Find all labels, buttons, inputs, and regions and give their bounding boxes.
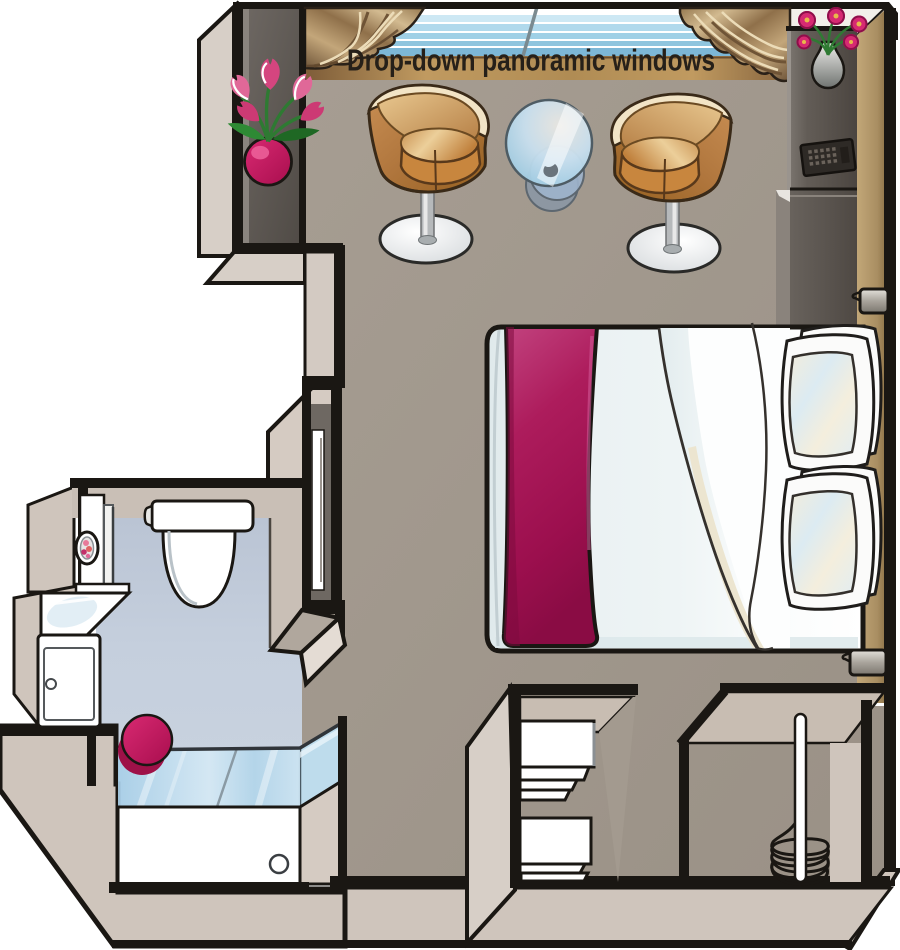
svg-text:Drop-down panoramic windows: Drop-down panoramic windows: [347, 43, 715, 78]
